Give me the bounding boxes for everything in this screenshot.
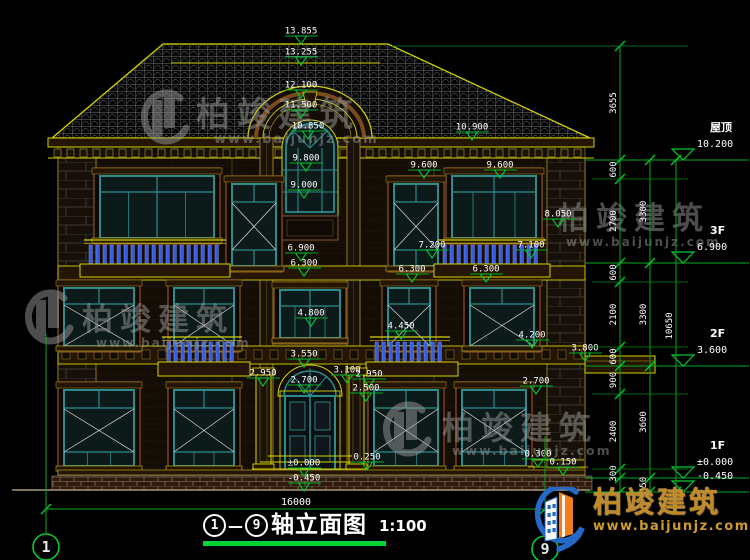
window bbox=[462, 280, 542, 352]
svg-text:900: 900 bbox=[609, 372, 619, 388]
svg-text:13.855: 13.855 bbox=[285, 27, 318, 37]
svg-text:3.600: 3.600 bbox=[697, 345, 727, 356]
brand-url: www.baijunjz.com bbox=[593, 519, 750, 534]
baluster bbox=[410, 342, 413, 362]
svg-text:10.900: 10.900 bbox=[456, 123, 489, 133]
svg-text:屋顶: 屋顶 bbox=[710, 121, 732, 134]
base-brick bbox=[52, 476, 592, 490]
svg-text:2400: 2400 bbox=[609, 421, 619, 443]
svg-text:7.200: 7.200 bbox=[418, 241, 445, 251]
baluster bbox=[396, 342, 399, 362]
svg-text:柏竣建筑: 柏竣建筑 bbox=[558, 201, 710, 237]
baluster bbox=[485, 245, 488, 264]
svg-text:2.700: 2.700 bbox=[522, 377, 549, 387]
axis-circle-end: 9 bbox=[245, 514, 268, 537]
baluster bbox=[103, 245, 106, 264]
baluster bbox=[506, 245, 509, 264]
svg-text:-0.450: -0.450 bbox=[697, 471, 733, 482]
svg-text:0.150: 0.150 bbox=[549, 458, 576, 468]
spot-elevation-marker: 13.855 bbox=[285, 27, 318, 45]
svg-text:10.200: 10.200 bbox=[697, 139, 733, 150]
svg-text:300: 300 bbox=[609, 465, 619, 481]
brand-name: 柏竣建筑 bbox=[593, 487, 750, 519]
drawing-canvas: 柏竣建筑www.baijunjz.com柏竣建筑www.baijunjz.com… bbox=[0, 0, 750, 560]
svg-text:9.600: 9.600 bbox=[486, 161, 513, 171]
svg-text:柏竣建筑: 柏竣建筑 bbox=[196, 95, 360, 135]
svg-text:1F: 1F bbox=[710, 439, 725, 452]
baluster bbox=[180, 245, 183, 264]
svg-text:6.900: 6.900 bbox=[697, 242, 727, 253]
svg-text:±0.000: ±0.000 bbox=[288, 459, 321, 469]
dimension-chain: 3655600270060021006009002400300 bbox=[609, 41, 625, 497]
svg-text:7.100: 7.100 bbox=[517, 241, 544, 251]
svg-text:3300: 3300 bbox=[639, 201, 649, 223]
axis-range-dash: — bbox=[228, 517, 243, 535]
baluster bbox=[159, 245, 162, 264]
window bbox=[92, 168, 222, 244]
svg-text:6.900: 6.900 bbox=[287, 244, 314, 254]
svg-text:柏竣建筑: 柏竣建筑 bbox=[442, 409, 598, 447]
baluster bbox=[492, 245, 495, 264]
baluster bbox=[431, 342, 434, 362]
brand-logo-icon bbox=[531, 487, 589, 553]
svg-text:3.800: 3.800 bbox=[571, 344, 598, 354]
window bbox=[386, 176, 446, 272]
window bbox=[56, 382, 142, 472]
baluster bbox=[145, 245, 148, 264]
svg-text:2700: 2700 bbox=[609, 210, 619, 232]
baluster bbox=[215, 245, 218, 264]
baluster bbox=[424, 342, 427, 362]
baluster bbox=[124, 245, 127, 264]
svg-text:-0.450: -0.450 bbox=[288, 474, 321, 484]
svg-text:10650: 10650 bbox=[665, 312, 675, 339]
svg-text:2F: 2F bbox=[710, 327, 725, 340]
baluster bbox=[96, 245, 99, 264]
baluster bbox=[438, 342, 441, 362]
baluster bbox=[471, 245, 474, 264]
svg-text:8.050: 8.050 bbox=[544, 210, 571, 220]
baluster bbox=[152, 245, 155, 264]
svg-text:2.950: 2.950 bbox=[355, 370, 382, 380]
svg-text:3655: 3655 bbox=[609, 92, 619, 114]
svg-text:6.300: 6.300 bbox=[290, 259, 317, 269]
svg-text:3300: 3300 bbox=[639, 304, 649, 326]
brand-logo: 柏竣建筑 www.baijunjz.com bbox=[531, 487, 750, 553]
baluster bbox=[457, 245, 460, 264]
window bbox=[224, 176, 284, 272]
svg-text:4.450: 4.450 bbox=[387, 322, 414, 332]
svg-text:6.300: 6.300 bbox=[472, 265, 499, 275]
svg-text:2.500: 2.500 bbox=[352, 384, 379, 394]
svg-text:9.600: 9.600 bbox=[410, 161, 437, 171]
svg-text:600: 600 bbox=[609, 264, 619, 280]
baluster bbox=[499, 245, 502, 264]
window bbox=[380, 280, 438, 352]
svg-text:柏竣建筑: 柏竣建筑 bbox=[82, 302, 234, 338]
baluster bbox=[187, 245, 190, 264]
svg-text:www.baijunjz.com: www.baijunjz.com bbox=[96, 336, 251, 350]
cad-elevation-drawing: 柏竣建筑www.baijunjz.com柏竣建筑www.baijunjz.com… bbox=[0, 0, 750, 560]
svg-text:12.100: 12.100 bbox=[285, 81, 318, 91]
drawing-scale: 1:100 bbox=[379, 517, 427, 535]
drawing-title-text: 轴立面图 bbox=[271, 514, 367, 537]
window bbox=[166, 382, 242, 472]
svg-text:6.300: 6.300 bbox=[398, 265, 425, 275]
baluster bbox=[208, 245, 211, 264]
baluster bbox=[375, 342, 378, 362]
baluster bbox=[403, 342, 406, 362]
baluster bbox=[201, 245, 204, 264]
baluster bbox=[166, 245, 169, 264]
baluster bbox=[417, 342, 420, 362]
svg-text:9.800: 9.800 bbox=[292, 154, 319, 164]
svg-text:3600: 3600 bbox=[639, 411, 649, 433]
baluster bbox=[110, 245, 113, 264]
baluster bbox=[173, 245, 176, 264]
level-marker: 10.200屋顶 bbox=[585, 121, 749, 160]
baluster bbox=[450, 245, 453, 264]
window bbox=[444, 168, 544, 244]
baluster bbox=[478, 245, 481, 264]
svg-text:0.250: 0.250 bbox=[353, 453, 380, 463]
baluster bbox=[513, 245, 516, 264]
svg-text:2.950: 2.950 bbox=[249, 369, 276, 379]
svg-text:3.550: 3.550 bbox=[290, 350, 317, 360]
svg-text:2100: 2100 bbox=[609, 304, 619, 326]
axis-bubble: 1 bbox=[33, 334, 59, 560]
svg-text:3F: 3F bbox=[710, 224, 725, 237]
svg-text:9.000: 9.000 bbox=[290, 181, 317, 191]
svg-text:2.700: 2.700 bbox=[290, 376, 317, 386]
svg-text:13.255: 13.255 bbox=[285, 48, 318, 58]
svg-text:4.200: 4.200 bbox=[518, 331, 545, 341]
baluster bbox=[89, 245, 92, 264]
svg-text:4.800: 4.800 bbox=[297, 309, 324, 319]
plinth-sill-band bbox=[58, 470, 585, 475]
svg-text:10.850: 10.850 bbox=[292, 122, 325, 132]
svg-text:11.500: 11.500 bbox=[285, 101, 318, 111]
svg-text:1: 1 bbox=[41, 538, 50, 556]
baluster bbox=[382, 342, 385, 362]
title-underline bbox=[203, 541, 386, 546]
baluster bbox=[194, 245, 197, 264]
svg-text:www.baijunjz.com: www.baijunjz.com bbox=[214, 132, 379, 147]
svg-text:600: 600 bbox=[609, 348, 619, 364]
baluster bbox=[131, 245, 134, 264]
tower-spandrel-panel bbox=[282, 216, 338, 240]
svg-text:0.300: 0.300 bbox=[524, 450, 551, 460]
baluster bbox=[389, 342, 392, 362]
svg-text:±0.000: ±0.000 bbox=[697, 457, 733, 468]
svg-text:600: 600 bbox=[609, 161, 619, 177]
baluster bbox=[117, 245, 120, 264]
baluster bbox=[138, 245, 141, 264]
svg-text:16000: 16000 bbox=[281, 497, 311, 508]
baluster bbox=[464, 245, 467, 264]
drawing-title: 1 — 9 轴立面图 1:100 bbox=[203, 514, 427, 537]
axis-circle-start: 1 bbox=[203, 514, 226, 537]
